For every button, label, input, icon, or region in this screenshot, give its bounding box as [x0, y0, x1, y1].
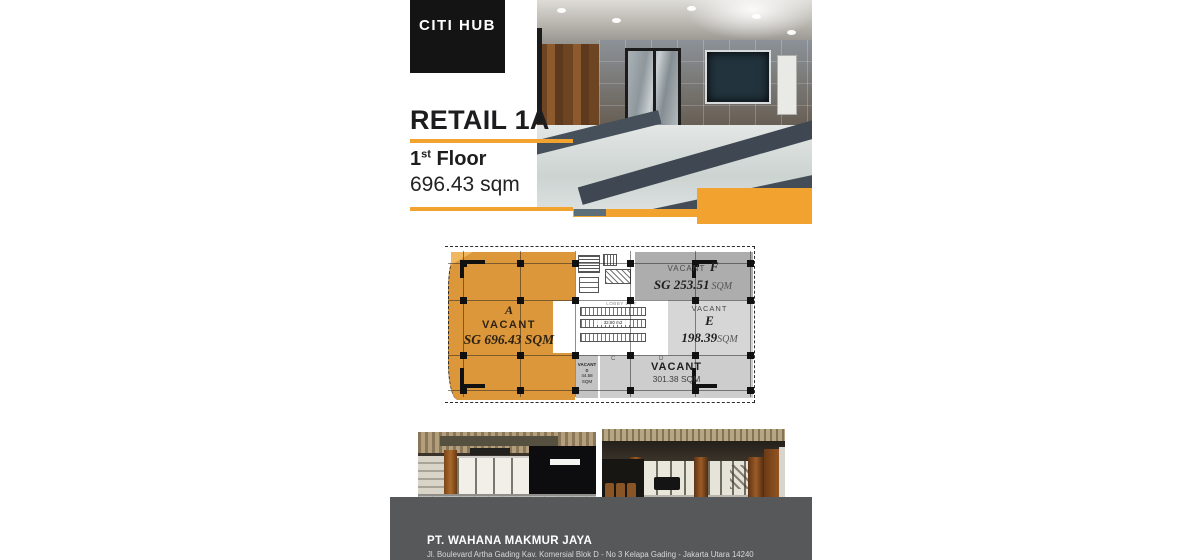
unit-e-letter: E	[668, 313, 751, 329]
plan-stair-drawing	[578, 255, 600, 273]
flyer-canvas: CITI HUB RETAIL 1A 1st Floor 696.43 sqm …	[0, 0, 1200, 560]
photo-tv-screen	[705, 50, 771, 104]
floor-word: Floor	[436, 148, 486, 170]
accent-rectangle	[697, 188, 812, 224]
unit-f-status: VACANT	[668, 264, 706, 273]
brand-logo: CITI HUB	[410, 0, 505, 73]
plan-column-marker	[692, 297, 699, 304]
unit-f-area: SG 253.51	[654, 277, 710, 292]
photo-ornate-ceiling	[602, 429, 785, 441]
photo-piano	[654, 477, 680, 490]
plan-grid-line	[448, 390, 753, 391]
photo-windows	[457, 458, 529, 494]
floor-label: 1st Floor	[410, 148, 486, 171]
plan-column-marker	[692, 387, 699, 394]
company-name: PT. WAHANA MAKMUR JAYA	[427, 535, 592, 547]
plan-unit-cd-label: VACANT 301.38 SQM	[600, 361, 753, 384]
ceiling-light	[787, 30, 796, 35]
floor-number: 1	[410, 148, 421, 170]
unit-f-letter: F	[710, 259, 719, 274]
unit-a-status: VACANT	[445, 319, 573, 331]
unit-cd-status: VACANT	[600, 361, 753, 373]
photo-sign	[550, 459, 580, 465]
plan-grid-line	[575, 251, 576, 397]
plan-column-marker	[627, 297, 634, 304]
photo-wood-column	[444, 450, 457, 498]
unit-a-area: SG 696.43 SQM	[445, 332, 573, 348]
plan-core-area-label: 32.80 m2	[595, 320, 631, 325]
photo-cabinet	[777, 55, 797, 115]
photo-vent	[470, 448, 510, 455]
plan-unit-a-label: A VACANT SG 696.43 SQM	[445, 303, 573, 348]
plan-stair-drawing	[603, 254, 617, 266]
unit-e-status: VACANT	[668, 304, 751, 313]
plan-column-marker	[460, 352, 467, 359]
plan-column-marker	[627, 260, 634, 267]
plan-column-marker	[627, 352, 634, 359]
plan-column-marker	[747, 387, 754, 394]
plan-column-marker	[517, 387, 524, 394]
hero-photo	[537, 0, 812, 211]
area-label: 696.43 sqm	[410, 173, 520, 197]
unit-f-area-unit: SQM	[712, 281, 733, 292]
floor-plan: LOBBY LIFT 32.80 m2 A VACANT SG 696.43 S…	[445, 246, 755, 403]
photo-ceiling-recess	[440, 436, 558, 446]
unit-b-area-unit: SQM	[576, 379, 598, 385]
plan-column-marker	[572, 297, 579, 304]
plan-unit-f-label: VACANT F SG 253.51SQM	[637, 258, 749, 294]
photo-dark-wall	[529, 446, 596, 496]
company-address: Jl. Boulevard Artha Gading Kav. Komersia…	[427, 550, 754, 559]
unit-a-letter: A	[445, 303, 573, 318]
plan-wall-corner	[460, 260, 485, 278]
photo-railing	[418, 456, 446, 494]
plan-grid-line	[448, 300, 753, 301]
plan-stair-drawing	[579, 277, 599, 293]
ceiling-light	[557, 8, 566, 13]
floor-suffix: st	[421, 148, 431, 160]
plan-column-marker	[747, 352, 754, 359]
unit-b-status: VACANT	[576, 362, 598, 368]
plan-column-marker	[460, 387, 467, 394]
accent-line-top	[410, 139, 573, 143]
brand-logo-text: CITI HUB	[419, 17, 496, 34]
plan-grid-line	[448, 355, 753, 356]
plan-escalator-drawing	[580, 307, 646, 316]
unit-e-area-unit: SQM	[717, 334, 738, 345]
ceiling-light	[612, 18, 621, 23]
unit-e-area: 198.39	[681, 330, 717, 345]
plan-column-marker	[747, 297, 754, 304]
photo-fragment	[574, 209, 606, 216]
plan-unit-e-label: VACANT E 198.39SQM	[668, 304, 751, 347]
plan-escalator-drawing	[580, 333, 646, 342]
plan-unit-b: VACANT B 44.58 SQM	[576, 355, 598, 398]
unit-cd-area: 301.38 SQM	[600, 374, 753, 384]
plan-column-marker	[572, 352, 579, 359]
plan-column-marker	[517, 260, 524, 267]
plan-stair-drawing	[605, 269, 631, 284]
plan-core-label: LOBBY LIFT	[575, 301, 668, 306]
accent-line-bottom	[410, 207, 573, 211]
page-title: RETAIL 1A	[410, 105, 550, 136]
footer-bar: PT. WAHANA MAKMUR JAYA Jl. Boulevard Art…	[390, 497, 812, 560]
plan-column-marker	[572, 260, 579, 267]
plan-column-marker	[572, 387, 579, 394]
ceiling-light	[752, 14, 761, 19]
plan-column-marker	[517, 352, 524, 359]
plan-wall-corner	[460, 368, 485, 388]
ceiling-light	[687, 6, 696, 11]
plan-column-marker	[692, 352, 699, 359]
plan-column-marker	[627, 387, 634, 394]
